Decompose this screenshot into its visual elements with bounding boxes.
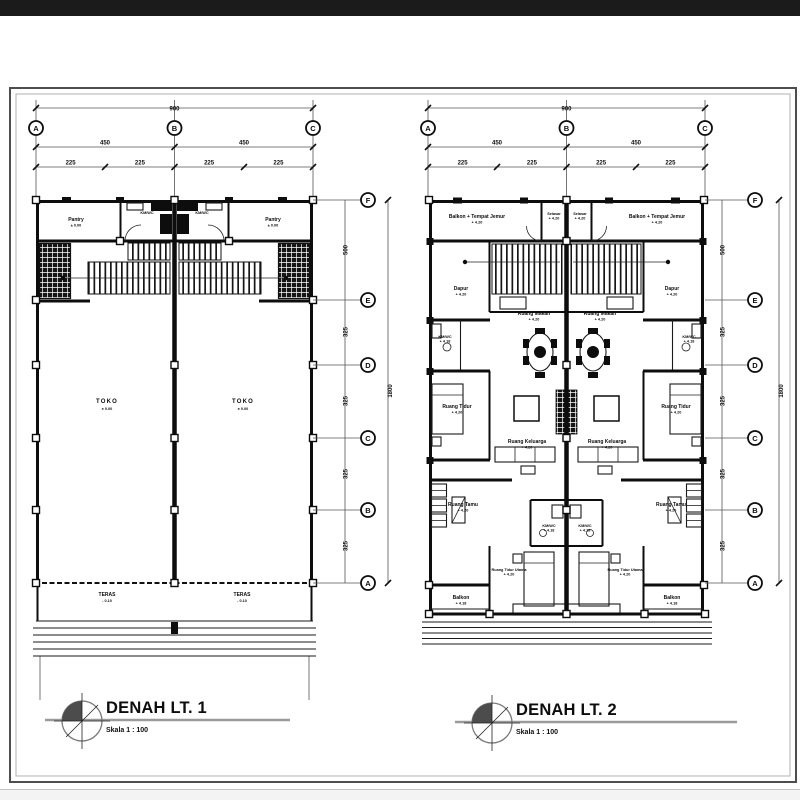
room-elevation: + 4.20 bbox=[652, 221, 663, 225]
dim-label: 500 bbox=[344, 244, 350, 255]
grid-bubble-label: C bbox=[702, 124, 708, 133]
room-elevation: ± 0.00 bbox=[71, 224, 82, 228]
room-elevation: - 0.10 bbox=[102, 599, 112, 603]
room-elevation: ± 0.00 bbox=[238, 407, 249, 411]
title-block-lt2: DENAH LT. 2 Skala 1 : 100 bbox=[455, 695, 737, 751]
drawing-sheet: 900 450 450 225 225 225 225 A B C bbox=[0, 0, 800, 800]
room-label: KM/WC bbox=[438, 335, 452, 339]
room-label: Ruang Makan bbox=[518, 311, 551, 317]
screenshot-stage: 900 450 450 225 225 225 225 A B C bbox=[0, 0, 800, 800]
room-label: KM/WC bbox=[195, 211, 209, 215]
room-label: Ruang Tidur bbox=[661, 404, 690, 410]
plan-scale: Skala 1 : 100 bbox=[106, 727, 148, 734]
room-elevation: + 4.20 bbox=[667, 293, 678, 297]
dim-label: 225 bbox=[665, 161, 676, 167]
grid-bubble-label: B bbox=[564, 124, 570, 133]
room-label: KM/WC bbox=[682, 335, 696, 339]
room-elevation: + 4.20 bbox=[452, 411, 463, 415]
toilet-block bbox=[40, 244, 71, 299]
dim-label: 500 bbox=[721, 244, 727, 255]
room-label: Ruang Tamu bbox=[448, 502, 478, 508]
shaft bbox=[514, 396, 539, 421]
dim-label: 325 bbox=[344, 395, 350, 406]
dim-label: 325 bbox=[721, 326, 727, 337]
room-label: TERAS bbox=[99, 592, 117, 598]
room-label: KM/WC bbox=[140, 211, 154, 215]
grid-bubble-label: A bbox=[752, 579, 758, 588]
room-elevation: + 4.18 bbox=[544, 529, 555, 533]
grid-bubble-label: A bbox=[33, 124, 39, 133]
grid-bubble-label: C bbox=[365, 434, 371, 443]
dim-label: 225 bbox=[66, 161, 77, 167]
room-elevation: + 4.20 bbox=[671, 411, 682, 415]
floor-plan-lt2: 900 450 450 225 225 225 225 A B C bbox=[421, 100, 785, 644]
room-label: Pantry bbox=[265, 217, 281, 223]
room-elevation: + 4.20 bbox=[472, 221, 483, 225]
room-label: Dapur bbox=[665, 286, 680, 292]
grid-bubble-label: B bbox=[365, 506, 371, 515]
north-compass-icon bbox=[464, 695, 520, 751]
plan-title: DENAH LT. 1 bbox=[106, 699, 207, 717]
room-elevation: + 4.20 bbox=[456, 293, 467, 297]
plan-scale: Skala 1 : 100 bbox=[516, 729, 558, 736]
dim-label: 450 bbox=[631, 141, 642, 147]
room-elevation: + 4.18 bbox=[440, 340, 451, 344]
dim-label: 225 bbox=[135, 161, 146, 167]
dim-label: 325 bbox=[344, 540, 350, 551]
grid-bubble-label: A bbox=[425, 124, 431, 133]
room-label: Balkon bbox=[453, 595, 470, 601]
grid-bubble-label: D bbox=[752, 361, 758, 370]
room-elevation: ± 0.00 bbox=[102, 407, 113, 411]
room-label: Pantry bbox=[68, 217, 84, 223]
dim-label: 450 bbox=[100, 141, 111, 147]
grid-bubble-label: F bbox=[366, 196, 371, 205]
dim-label: 325 bbox=[344, 468, 350, 479]
dim-label: 225 bbox=[458, 161, 469, 167]
room-label: TERAS bbox=[234, 592, 252, 598]
room-label: Ruang Tidur Utama bbox=[608, 568, 644, 572]
room-label: Ruang Makan bbox=[584, 311, 617, 317]
room-label: Balkon + Tempat Jemur bbox=[629, 214, 685, 220]
dim-label: 325 bbox=[721, 468, 727, 479]
grid-bubble-label: E bbox=[752, 296, 757, 305]
dim-label: 325 bbox=[344, 326, 350, 337]
room-label: TOKO bbox=[232, 399, 254, 405]
title-block-lt1: DENAH LT. 1 Skala 1 : 100 bbox=[45, 693, 290, 749]
dim-label: 325 bbox=[721, 395, 727, 406]
room-label: KM/WC bbox=[542, 524, 556, 528]
floor-plan-lt1: 900 450 450 225 225 225 225 A B C bbox=[29, 100, 394, 700]
dim-label: 450 bbox=[492, 141, 503, 147]
grid-bubble-label: C bbox=[752, 434, 758, 443]
room-label: Balkon bbox=[664, 595, 681, 601]
lt1-unit-geometry bbox=[33, 197, 175, 701]
room-elevation: + 4.20 bbox=[529, 318, 540, 322]
room-elevation: + 4.20 bbox=[522, 446, 533, 450]
grid-bubble-label: C bbox=[310, 124, 316, 133]
room-elevation: + 4.20 bbox=[602, 446, 613, 450]
dim-label: 225 bbox=[596, 161, 607, 167]
sheet-frame bbox=[10, 88, 796, 782]
stair-upper-flight bbox=[128, 243, 170, 260]
dim-label: 225 bbox=[527, 161, 538, 167]
room-label: Balkon + Tempat Jemur bbox=[449, 214, 505, 220]
room-label: Ruang Tidur Utama bbox=[492, 568, 528, 572]
room-elevation: + 4.20 bbox=[575, 217, 586, 221]
room-label: Ruang Tamu bbox=[656, 502, 686, 508]
dim-label-total-height: 1800 bbox=[388, 384, 394, 398]
dim-label: 325 bbox=[721, 540, 727, 551]
room-elevation: - 0.10 bbox=[237, 599, 247, 603]
room-label: KM/WC bbox=[578, 524, 592, 528]
grid-bubble-label: B bbox=[752, 506, 758, 515]
room-elevation: + 4.18 bbox=[684, 340, 695, 344]
room-elevation: + 4.20 bbox=[458, 509, 469, 513]
room-elevation: ± 0.00 bbox=[268, 224, 279, 228]
dim-label: 450 bbox=[239, 141, 250, 147]
dim-label: 900 bbox=[561, 107, 572, 113]
grid-bubble-label: A bbox=[365, 579, 371, 588]
room-elevation: + 4.18 bbox=[456, 602, 467, 606]
bottom-gray-strip bbox=[0, 789, 800, 800]
room-elevation: + 4.18 bbox=[580, 529, 591, 533]
plan-title: DENAH LT. 2 bbox=[516, 701, 617, 719]
room-elevation: + 4.20 bbox=[666, 509, 677, 513]
room-label: Selasar bbox=[547, 212, 561, 216]
room-elevation: + 4.20 bbox=[549, 217, 560, 221]
grid-bubble-label: B bbox=[172, 124, 178, 133]
room-label: Ruang Keluarga bbox=[508, 439, 547, 445]
room-elevation: + 4.20 bbox=[504, 573, 515, 577]
room-elevation: + 4.18 bbox=[667, 602, 678, 606]
room-label: Ruang Tidur bbox=[442, 404, 471, 410]
grid-bubble-label: F bbox=[753, 196, 758, 205]
room-label: Ruang Keluarga bbox=[588, 439, 627, 445]
room-label: TOKO bbox=[96, 399, 118, 405]
room-elevation: + 4.20 bbox=[620, 573, 631, 577]
dim-label: 225 bbox=[273, 161, 284, 167]
entry-steps bbox=[422, 622, 712, 644]
dim-label: 225 bbox=[204, 161, 215, 167]
master-bed bbox=[524, 552, 554, 606]
room-elevation: + 4.20 bbox=[595, 318, 606, 322]
room-label: Dapur bbox=[454, 286, 469, 292]
grid-bubble-label: E bbox=[365, 296, 370, 305]
stair-flight bbox=[492, 244, 562, 294]
north-compass-icon bbox=[54, 693, 110, 749]
room-label: Selasar bbox=[573, 212, 587, 216]
dim-label: 900 bbox=[169, 107, 180, 113]
grid-bubble-label: D bbox=[365, 361, 371, 370]
dim-label-total-height: 1800 bbox=[779, 384, 785, 398]
